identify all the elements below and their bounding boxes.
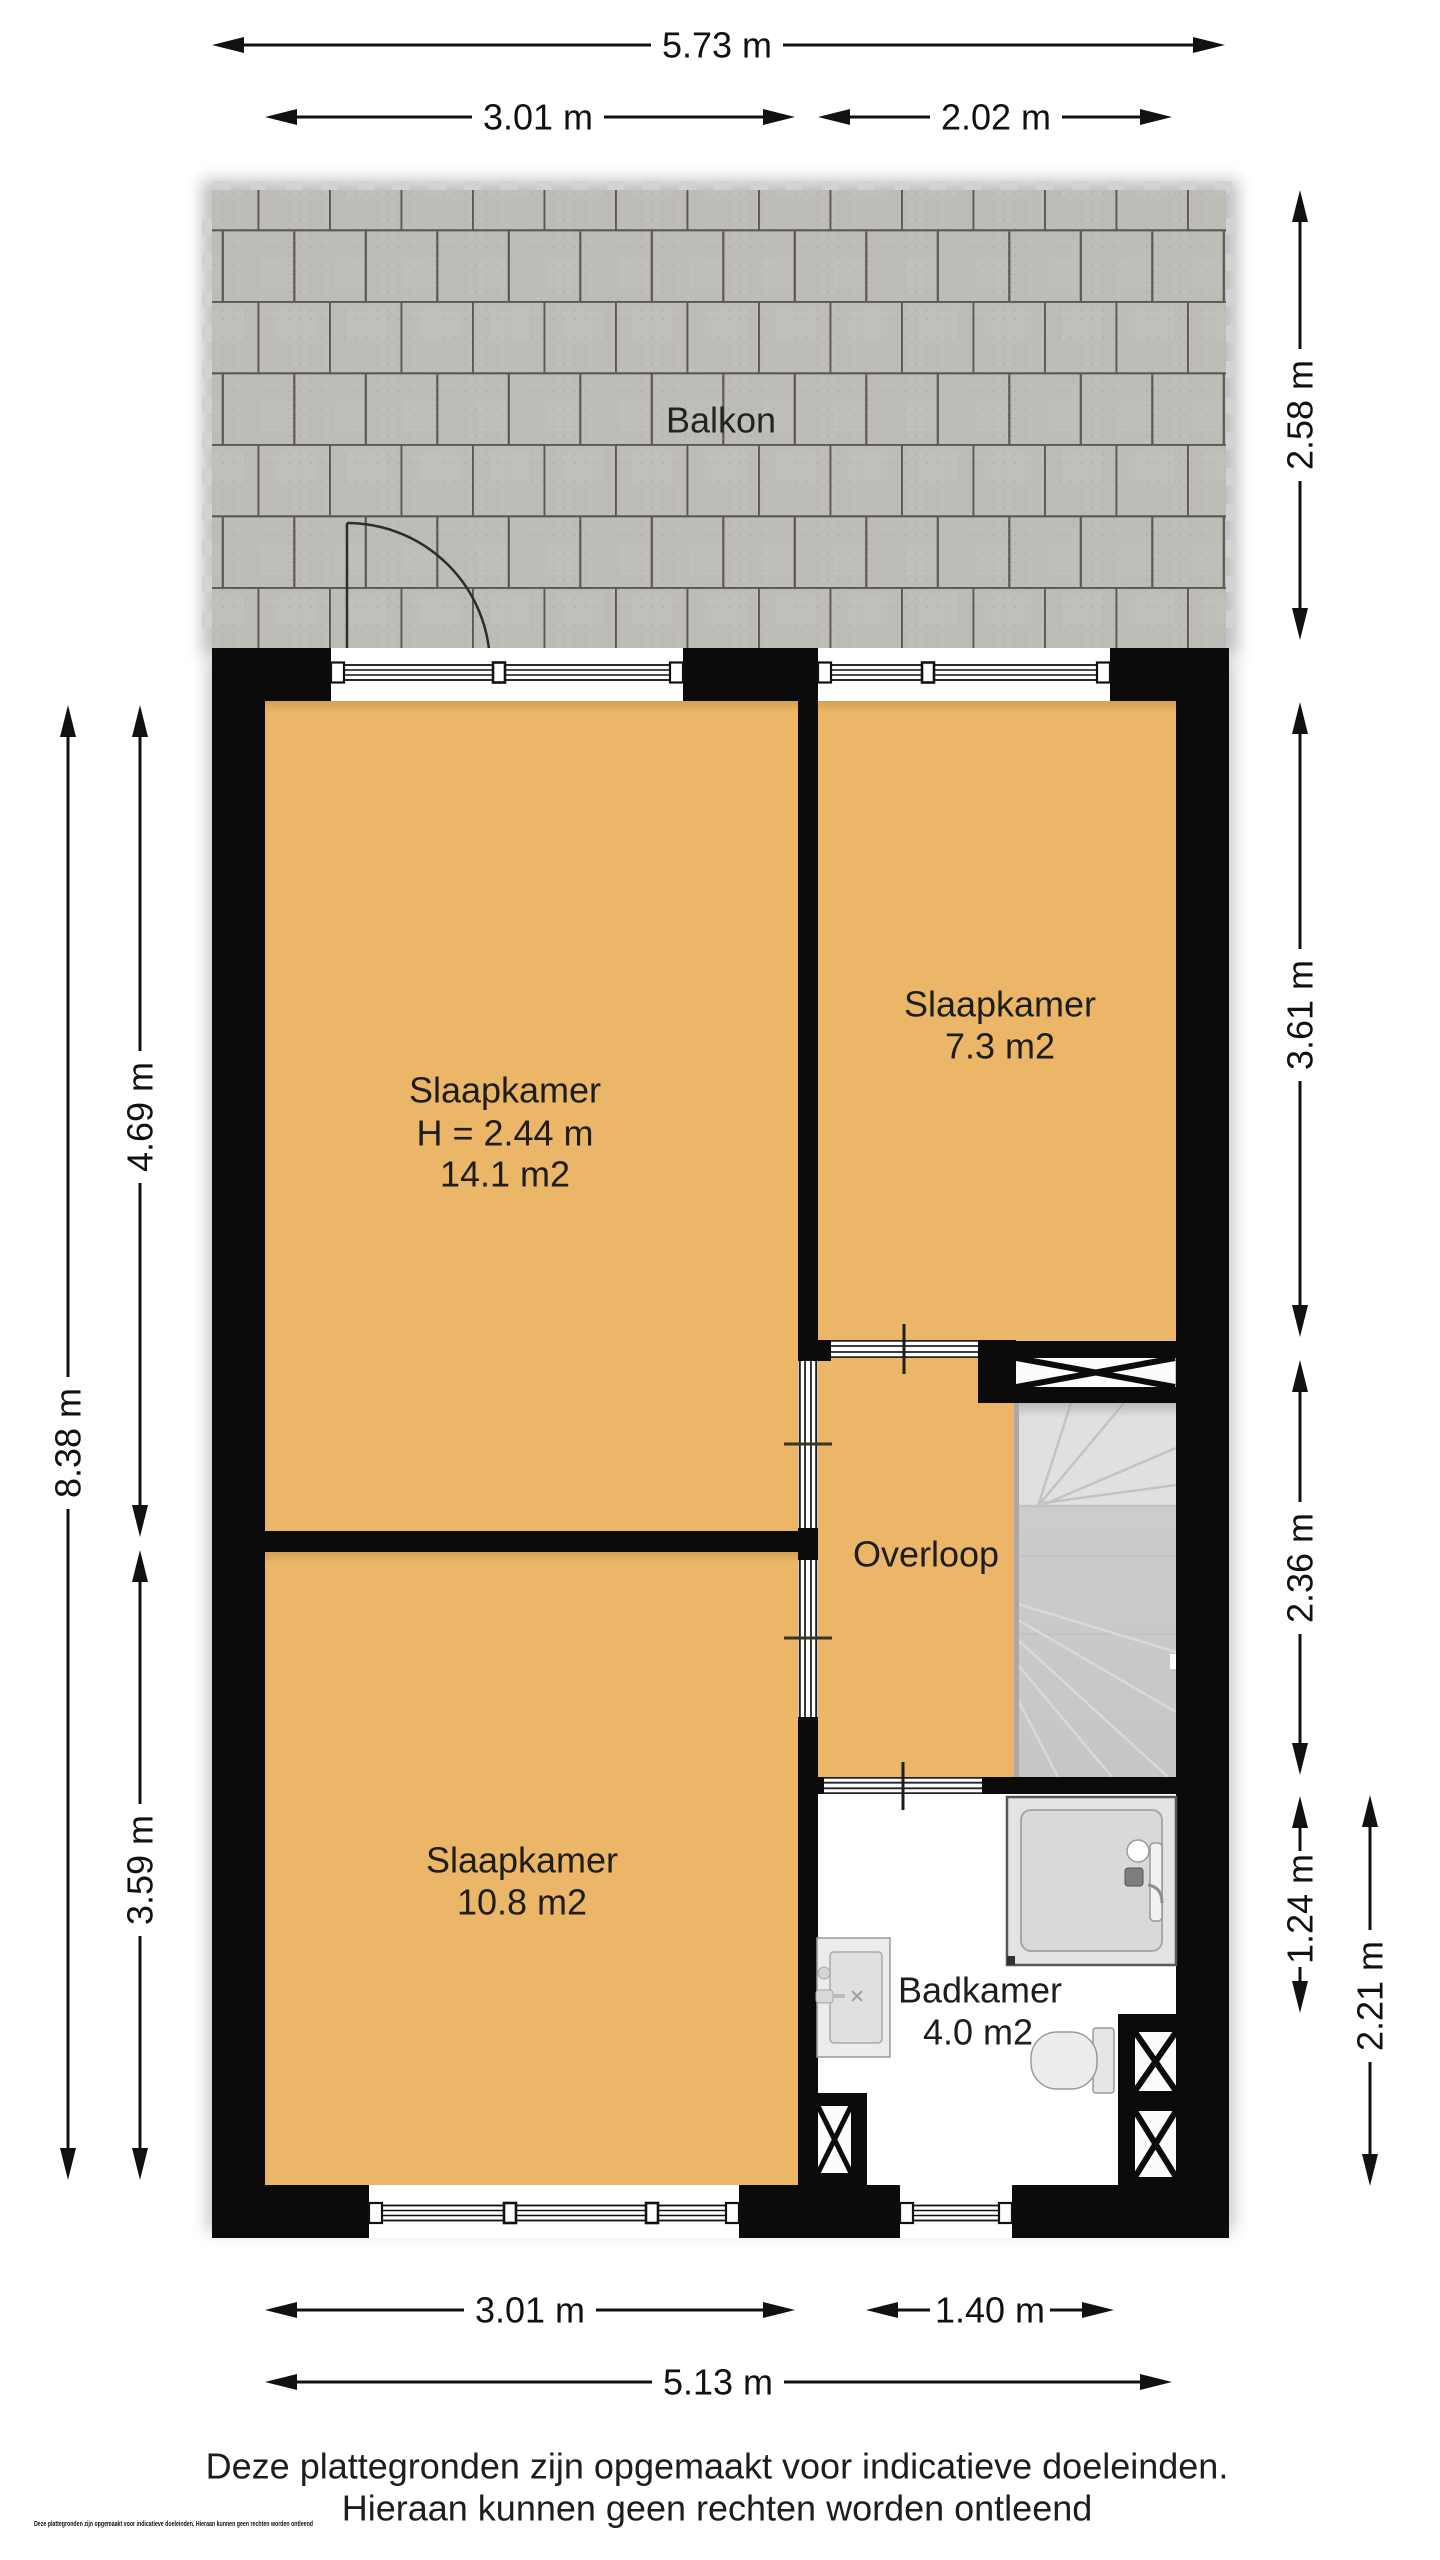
svg-text:8.38 m: 8.38 m (48, 1388, 89, 1498)
svg-text:1.40 m: 1.40 m (935, 2290, 1045, 2331)
svg-text:10.8 m2: 10.8 m2 (457, 1882, 587, 1923)
svg-text:3.61 m: 3.61 m (1280, 960, 1321, 1070)
svg-text:5.73 m: 5.73 m (662, 25, 772, 66)
svg-text:3.01 m: 3.01 m (483, 97, 593, 138)
svg-text:Badkamer: Badkamer (898, 1970, 1062, 2011)
svg-text:2.36 m: 2.36 m (1280, 1513, 1321, 1623)
svg-text:Balkon: Balkon (666, 400, 776, 441)
svg-text:4.0 m2: 4.0 m2 (923, 2012, 1033, 2053)
svg-text:7.3 m2: 7.3 m2 (945, 1026, 1055, 1067)
svg-text:2.58 m: 2.58 m (1280, 360, 1321, 470)
svg-text:1.24 m: 1.24 m (1280, 1854, 1321, 1964)
svg-text:2.21 m: 2.21 m (1350, 1941, 1391, 2051)
svg-text:Deze plattegronden zijn opgema: Deze plattegronden zijn opgemaakt voor i… (34, 2521, 313, 2528)
svg-text:Slaapkamer: Slaapkamer (426, 1840, 618, 1881)
svg-text:H = 2.44 m: H = 2.44 m (416, 1113, 593, 1154)
svg-text:Hieraan kunnen geen rechten wo: Hieraan kunnen geen rechten worden ontle… (342, 2488, 1093, 2529)
svg-text:Slaapkamer: Slaapkamer (409, 1070, 601, 1111)
svg-text:14.1 m2: 14.1 m2 (440, 1154, 570, 1195)
svg-text:5.13 m: 5.13 m (663, 2362, 773, 2403)
svg-text:Slaapkamer: Slaapkamer (904, 984, 1096, 1025)
svg-text:Deze plattegronden zijn opgema: Deze plattegronden zijn opgemaakt voor i… (206, 2446, 1229, 2487)
svg-text:2.02 m: 2.02 m (941, 97, 1051, 138)
svg-text:3.59 m: 3.59 m (120, 1815, 161, 1925)
svg-text:3.01 m: 3.01 m (475, 2290, 585, 2331)
svg-text:Overloop: Overloop (853, 1534, 999, 1575)
svg-text:4.69 m: 4.69 m (120, 1062, 161, 1172)
